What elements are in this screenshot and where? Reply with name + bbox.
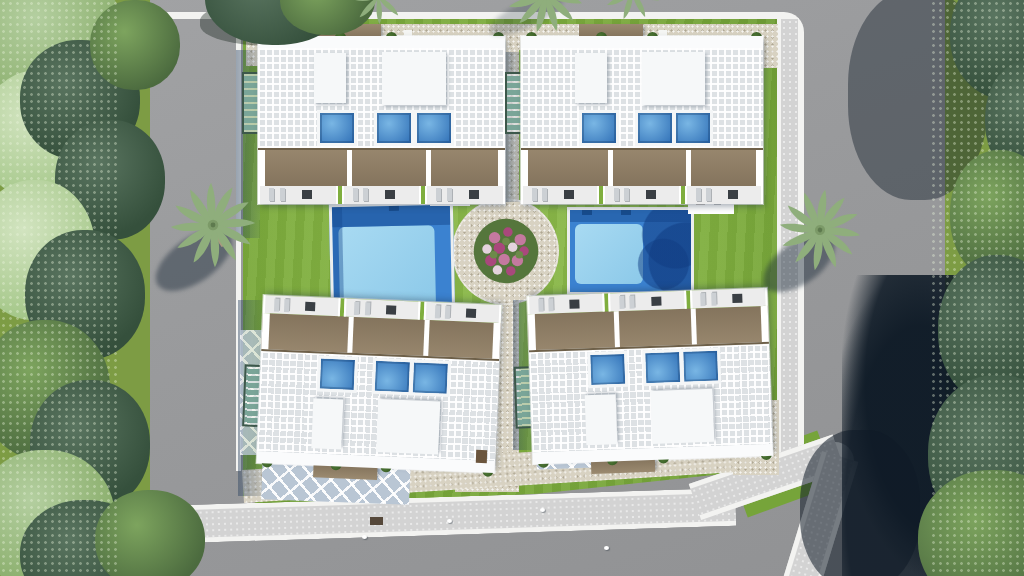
foliage-highlights — [930, 0, 1024, 576]
band-cap — [521, 150, 528, 188]
terrace-unit — [343, 298, 420, 319]
sun-lounger — [435, 305, 441, 318]
swimming-pool-east — [567, 207, 694, 295]
sun-lounger — [280, 188, 285, 201]
aerial-render-scene — [0, 0, 1024, 576]
palm-fronds — [502, 0, 588, 38]
sun-lounger — [364, 302, 370, 315]
white-bird — [447, 519, 452, 523]
palm-tree-north — [502, 0, 588, 38]
sun-lounger — [548, 298, 553, 311]
terrace-unit — [342, 186, 422, 204]
terrace-table — [651, 297, 661, 306]
palm-fronds — [600, 0, 664, 24]
rooftop-spa-pool — [371, 358, 412, 396]
sun-lounger — [532, 188, 537, 201]
foliage-highlights — [0, 0, 120, 576]
palm-fronds — [171, 183, 255, 267]
palm-fronds — [774, 184, 866, 276]
terrace-unit — [258, 186, 338, 204]
garden-bench — [370, 517, 383, 525]
roof-volume — [376, 399, 440, 455]
palm-tree-west — [165, 177, 261, 273]
sun-lounger — [614, 188, 619, 201]
pool-ladder — [582, 210, 592, 215]
palm-tree-north-small — [600, 0, 664, 24]
terrace-table — [564, 190, 574, 199]
sun-lounger — [542, 188, 547, 201]
sun-lounger — [274, 299, 280, 312]
building-body — [258, 36, 505, 204]
building-bottom-left — [257, 295, 502, 473]
sun-lounger — [445, 306, 451, 319]
white-bird — [540, 508, 545, 512]
terrace-table — [305, 302, 315, 311]
rooftop-pergola-deck — [258, 48, 505, 154]
white-bird — [362, 535, 367, 539]
tree-shadow-on-road — [800, 430, 920, 576]
sun-lounger — [696, 188, 701, 201]
sun-lounger — [354, 302, 360, 315]
building-body — [527, 288, 773, 464]
rooftop-spa-pool — [374, 110, 414, 146]
band-cap — [761, 304, 769, 342]
palm-tree-north-small — [347, 0, 409, 28]
sun-lounger — [363, 188, 368, 201]
terrace-table — [302, 190, 312, 199]
pool-ladder — [621, 210, 631, 215]
band-cap — [528, 312, 536, 350]
rooftop-spa-pool — [579, 110, 619, 146]
utility-box — [476, 450, 487, 463]
terrace-unit — [263, 295, 340, 316]
flower-bed — [468, 213, 544, 289]
band-cap — [498, 150, 505, 188]
rooftop-spa-pool — [409, 359, 450, 397]
terrace-table — [386, 305, 396, 314]
terrace-table — [570, 299, 580, 308]
ground-terrace-row — [521, 186, 763, 204]
roof-volume — [314, 53, 346, 103]
rooftop-spa-pool — [642, 349, 683, 386]
building-body — [257, 295, 502, 473]
roof-volume — [311, 398, 344, 449]
unit-divider — [691, 306, 697, 344]
terrace-table — [466, 309, 476, 318]
terrace-table — [646, 190, 656, 199]
rooftop-pergola-deck — [257, 345, 499, 461]
terrace-unit — [603, 186, 681, 204]
sun-lounger — [447, 188, 452, 201]
terrace-roof-band — [521, 148, 763, 188]
rooftop-spa-pool — [317, 355, 358, 393]
pool-building-shadow — [627, 210, 694, 292]
white-bird — [604, 546, 609, 550]
sun-lounger — [269, 188, 274, 201]
bottom-sidewalk — [155, 488, 736, 544]
roof-volume — [382, 52, 446, 105]
terrace-unit — [521, 186, 599, 204]
unit-divider — [686, 150, 691, 188]
terrace-unit — [527, 294, 605, 315]
roof-volume — [585, 394, 618, 445]
sun-lounger — [630, 295, 635, 308]
sun-lounger — [711, 293, 716, 306]
terrace-table — [385, 190, 395, 199]
rooftop-pergola-deck — [521, 48, 763, 154]
unit-divider — [426, 150, 431, 188]
ground-terrace-row — [258, 186, 505, 204]
unit-divider — [614, 309, 620, 347]
sun-lounger — [624, 188, 629, 201]
pool-shallow-water — [338, 225, 436, 308]
sun-lounger — [436, 188, 441, 201]
unit-divider — [423, 318, 430, 356]
rooftop-spa-pool — [414, 110, 454, 146]
building-body — [521, 36, 763, 204]
terrace-table — [728, 190, 738, 199]
terrace-unit — [685, 186, 763, 204]
sun-lounger — [701, 293, 706, 306]
roof-volume — [575, 53, 606, 103]
sun-lounger — [706, 188, 711, 201]
terrace-unit — [424, 302, 501, 323]
rooftop-spa-pool — [587, 351, 628, 388]
sun-lounger — [538, 299, 543, 312]
band-cap — [756, 150, 763, 188]
terrace-unit — [608, 291, 686, 312]
sun-lounger — [353, 188, 358, 201]
palm-fronds — [351, 0, 406, 24]
terrace-table — [469, 190, 479, 199]
sun-lounger — [284, 299, 290, 312]
unit-divider — [347, 150, 352, 188]
rooftop-spa-pool — [673, 110, 713, 146]
unit-divider — [347, 315, 354, 353]
terrace-unit — [425, 186, 505, 204]
unit-divider — [608, 150, 613, 188]
roof-volume — [642, 52, 705, 105]
rooftop-spa-pool — [317, 110, 357, 146]
rooftop-pergola-deck — [529, 338, 773, 452]
terrace-roof-band — [258, 148, 505, 188]
building-bottom-right — [527, 288, 773, 464]
palm-tree-east — [774, 184, 866, 276]
band-cap — [261, 311, 270, 349]
rooftop-spa-pool — [680, 348, 721, 385]
terrace-table — [732, 294, 742, 303]
rooftop-spa-pool — [635, 110, 675, 146]
building-top-right — [521, 36, 763, 204]
sun-lounger — [619, 296, 624, 309]
roof-volume — [651, 389, 715, 444]
building-top-left — [258, 36, 505, 204]
pool-ladder — [389, 206, 399, 211]
terrace-unit — [690, 288, 768, 309]
